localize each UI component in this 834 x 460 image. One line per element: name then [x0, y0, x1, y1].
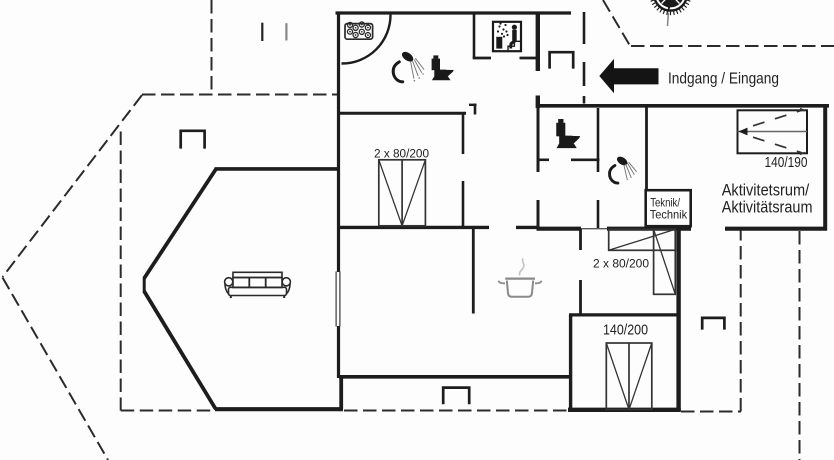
svg-text:Technik: Technik [650, 208, 688, 222]
svg-text:Aktivitätsraum: Aktivitätsraum [722, 197, 813, 216]
svg-text:Indgang / Eingang: Indgang / Eingang [668, 70, 779, 87]
svg-text:2 x 80/200: 2 x 80/200 [593, 257, 649, 271]
svg-text:140/200: 140/200 [603, 322, 648, 338]
svg-text:2 x 80/200: 2 x 80/200 [374, 147, 429, 161]
svg-text:140/190: 140/190 [765, 155, 808, 171]
